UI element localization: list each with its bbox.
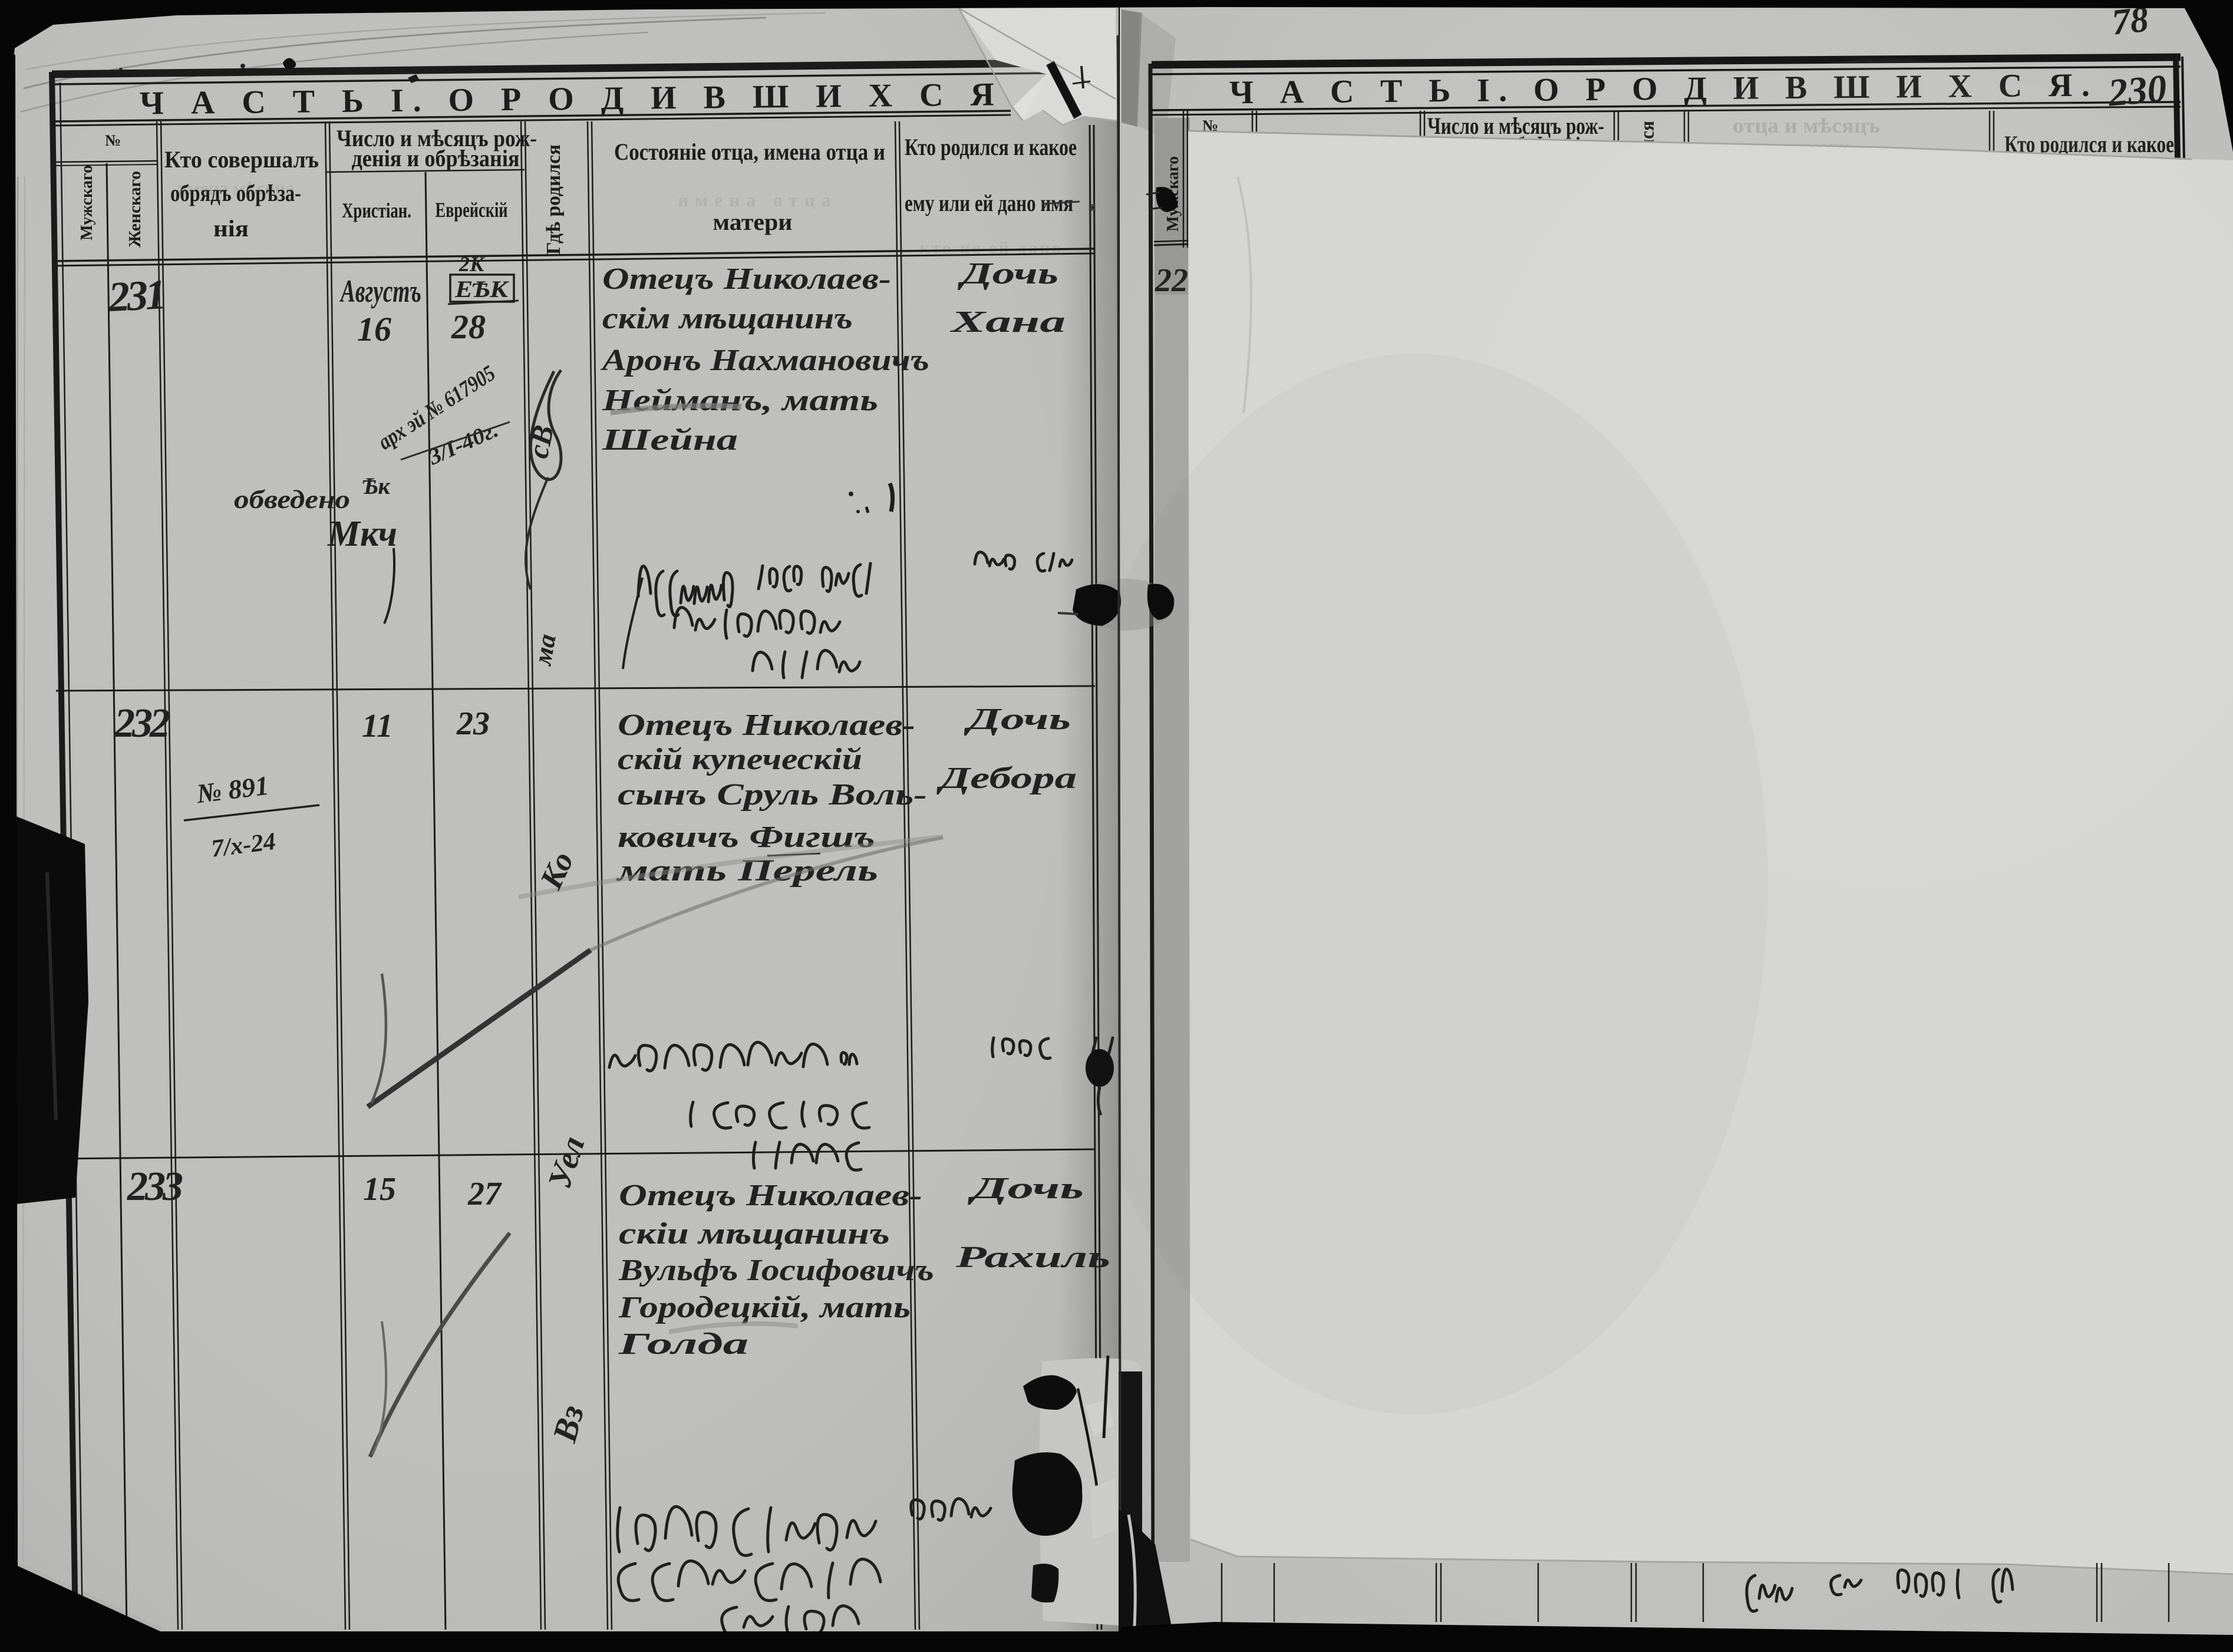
svg-text:28: 28: [451, 308, 486, 346]
svg-text:Кто совершалъ: Кто совершалъ: [164, 146, 319, 173]
svg-text:обведено: обведено: [234, 485, 350, 514]
svg-text:ма: ма: [527, 632, 562, 668]
svg-text:скій купеческій: скій купеческій: [618, 743, 862, 776]
svg-text:Городецкій, мать: Городецкій, мать: [618, 1291, 911, 1324]
svg-text:Отецъ Николаев-: Отецъ Николаев-: [619, 1179, 922, 1212]
svg-text:Голда: Голда: [618, 1327, 748, 1361]
svg-text:сВ: сВ: [521, 422, 560, 461]
svg-text:Женскаго: Женскаго: [126, 171, 144, 248]
svg-text:Шейна: Шейна: [602, 423, 738, 457]
svg-text:Христіан.: Христіан.: [342, 199, 411, 222]
svg-text:233: 233: [127, 1164, 183, 1209]
svg-text:Дебора: Дебора: [936, 761, 1077, 795]
svg-text:скім мѣщанинъ: скім мѣщанинъ: [602, 302, 853, 335]
svg-text:Мкч: Мкч: [327, 514, 397, 554]
svg-text:Нейманъ, мать: Нейманъ, мать: [602, 384, 878, 417]
svg-text:ЕѢК: ЕѢК: [454, 276, 509, 302]
svg-text:Аронъ Нахмановичъ: Аронъ Нахмановичъ: [600, 344, 929, 377]
svg-text:Гдѣ родился: Гдѣ родился: [543, 144, 565, 255]
svg-text:Хана: Хана: [949, 305, 1066, 339]
svg-text:денія и обрѣзанія: денія и обрѣзанія: [352, 145, 520, 172]
svg-text:16: 16: [357, 310, 391, 348]
svg-text:11: 11: [362, 708, 393, 744]
svg-text:матери: матери: [713, 209, 793, 235]
svg-text:232: 232: [114, 701, 170, 746]
svg-text:Отецъ Николаев-: Отецъ Николаев-: [602, 262, 891, 296]
svg-text:нія: нія: [213, 215, 249, 242]
svg-text:сынъ Сруль Воль-: сынъ Сруль Воль-: [618, 778, 927, 812]
svg-text:Августъ: Августъ: [339, 273, 421, 309]
svg-text:Кто родился и какое: Кто родился и какое: [905, 134, 1077, 160]
svg-text:Отецъ Николаев-: Отецъ Николаев-: [618, 708, 915, 742]
svg-text:скіи мѣщанинъ: скіи мѣщанинъ: [619, 1217, 890, 1251]
svg-text:15: 15: [363, 1171, 396, 1208]
svg-text:Ѣк: Ѣк: [362, 473, 391, 499]
svg-text:231: 231: [107, 271, 164, 321]
svg-text:Дочь: Дочь: [964, 703, 1071, 736]
svg-text:Дочь: Дочь: [968, 1172, 1084, 1205]
svg-text:Вульфъ Іосифовичъ: Вульфъ Іосифовичъ: [618, 1254, 934, 1287]
svg-text:27: 27: [467, 1176, 502, 1212]
svg-text:Состояніе отца, имена отца и: Состояніе отца, имена отца и: [614, 139, 885, 165]
svg-text:Дочь: Дочь: [958, 257, 1058, 291]
svg-text:230: 230: [2106, 67, 2169, 114]
svg-text:Мужскаго: Мужскаго: [78, 165, 96, 240]
svg-text:№: №: [105, 131, 121, 149]
svg-text:имена отца: имена отца: [678, 189, 831, 210]
svg-text:Рахиль: Рахиль: [955, 1241, 1110, 1274]
svg-text:2К: 2К: [459, 252, 486, 276]
svg-text:Еврейскій: Еврейскій: [436, 198, 508, 222]
svg-text:имена мѣсяца: имена мѣсяца: [177, 177, 295, 199]
svg-text:23: 23: [456, 705, 490, 742]
